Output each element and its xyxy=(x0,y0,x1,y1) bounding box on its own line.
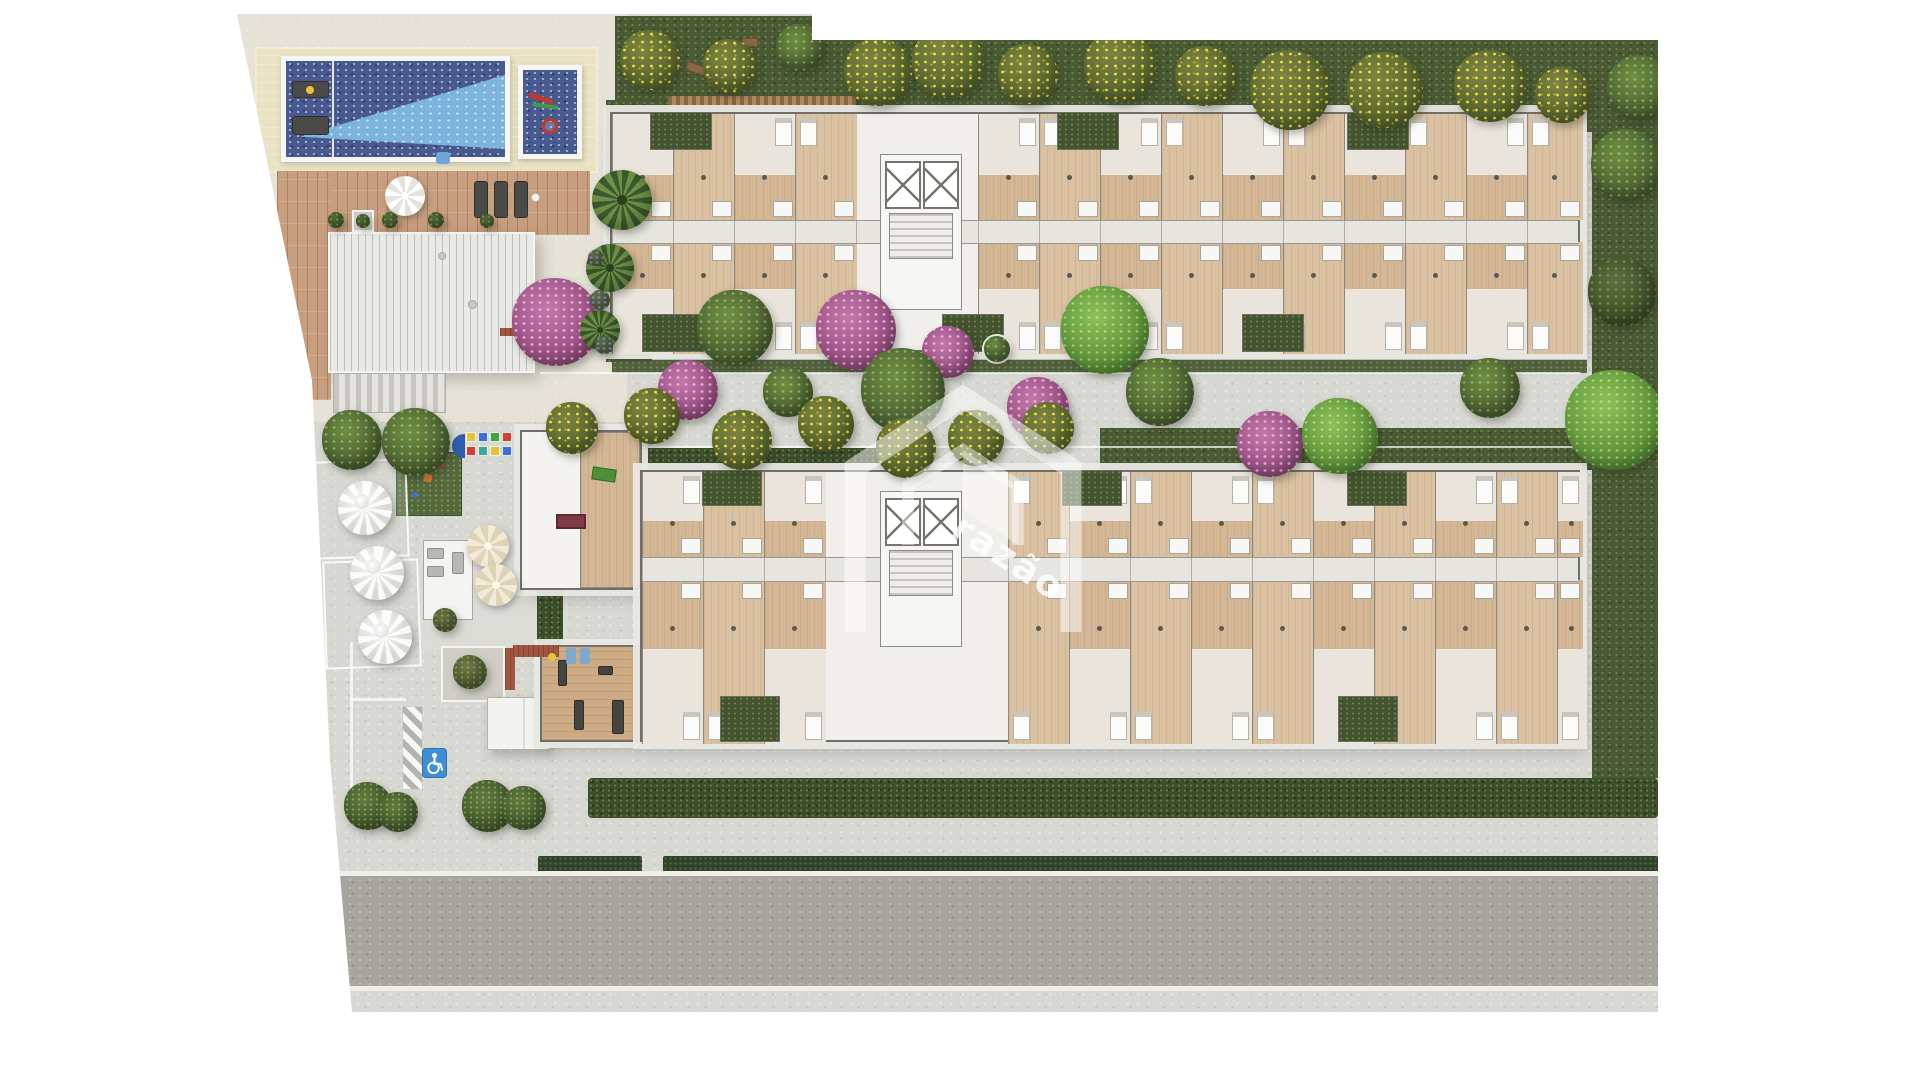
street xyxy=(315,876,1658,988)
tree-bush-48 xyxy=(480,214,494,228)
tree-y-30 xyxy=(546,402,598,454)
unit-table xyxy=(1433,273,1438,278)
unit-bathroom xyxy=(712,201,732,217)
tree-y-5 xyxy=(1084,30,1156,102)
unit-bed xyxy=(1257,712,1274,740)
unit-table xyxy=(1097,626,1102,631)
unit-bed xyxy=(1532,322,1549,350)
courtyard-garden xyxy=(650,112,712,150)
unit-table xyxy=(731,626,736,631)
tree-y-4 xyxy=(998,44,1058,104)
unit-table xyxy=(1552,273,1557,278)
unit-table xyxy=(1524,626,1529,631)
tree-gd-14 xyxy=(1588,258,1656,326)
unit-bathroom xyxy=(1108,538,1128,554)
unit-table xyxy=(1280,626,1285,631)
unit-bed xyxy=(1166,118,1183,146)
unit-bathroom xyxy=(1230,538,1250,554)
unit-bed xyxy=(1532,118,1549,146)
staircase xyxy=(889,550,953,596)
apartment-unit xyxy=(1222,114,1284,220)
unit-bed xyxy=(1044,322,1061,350)
pool-ladder xyxy=(436,152,450,164)
tree-y-9 xyxy=(1454,50,1526,122)
unit-table xyxy=(731,521,736,526)
kids-pool-ring-float xyxy=(542,118,558,134)
deck-lounger-3 xyxy=(514,181,528,218)
tree-y-34 xyxy=(876,418,936,478)
deck-lounger-2 xyxy=(494,181,508,218)
unit-bed xyxy=(805,476,822,504)
tree-g-25 xyxy=(984,336,1010,362)
condominium-site xyxy=(0,0,1920,1080)
tree-olive-50 xyxy=(453,655,487,689)
apartment-unit xyxy=(1191,472,1253,557)
pool-lane-line xyxy=(332,61,334,157)
tree-y-3 xyxy=(912,26,984,98)
apartment-unit xyxy=(1496,580,1558,744)
unit-bathroom xyxy=(1413,538,1433,554)
unit-bathroom xyxy=(1505,201,1525,217)
tree-bush-53 xyxy=(378,792,418,832)
gym-mat-1 xyxy=(566,648,576,664)
unit-bed xyxy=(1135,712,1152,740)
apartment-unit xyxy=(1161,242,1223,354)
gym-bench xyxy=(598,666,613,675)
unit-bed xyxy=(1476,712,1493,740)
unit-bathroom xyxy=(1169,583,1189,599)
apartment-unit xyxy=(1405,242,1467,354)
hopscotch-tile-7 xyxy=(490,446,500,456)
tree-gb-26 xyxy=(1061,286,1149,374)
apartment-unit xyxy=(978,114,1040,220)
party-room-roof xyxy=(328,232,535,373)
unit-bathroom xyxy=(1139,201,1159,217)
unit-bed xyxy=(1385,322,1402,350)
hopscotch-tile-6 xyxy=(478,446,488,456)
staircase xyxy=(889,213,953,259)
tree-g-13 xyxy=(1591,129,1663,201)
unit-bed xyxy=(1410,118,1427,146)
unit-bed xyxy=(1013,712,1030,740)
tree-y-32 xyxy=(712,410,772,470)
apartment-unit xyxy=(1527,114,1583,220)
unit-bed xyxy=(775,322,792,350)
unit-bathroom xyxy=(803,538,823,554)
unit-bathroom xyxy=(834,245,854,261)
courtyard-garden xyxy=(1057,112,1119,150)
unit-bed xyxy=(1501,712,1518,740)
games-room-wood-floor xyxy=(580,432,640,588)
hopscotch-tile-1 xyxy=(466,432,476,442)
unit-table xyxy=(1569,626,1574,631)
unit-bathroom xyxy=(1261,201,1281,217)
tree-palm-39 xyxy=(592,170,652,230)
unit-bathroom xyxy=(651,245,671,261)
unit-bathroom xyxy=(1017,201,1037,217)
dome-roof-2 xyxy=(350,546,404,600)
lounge-sofa-3 xyxy=(452,552,464,574)
unit-bathroom xyxy=(1291,538,1311,554)
apartment-unit xyxy=(1252,580,1314,744)
unit-bed xyxy=(1135,476,1152,504)
unit-table xyxy=(1402,626,1407,631)
unit-bathroom xyxy=(1474,583,1494,599)
wood-deck-vertical xyxy=(277,171,331,400)
central-corridor xyxy=(642,557,1578,582)
gym-treadmill xyxy=(574,700,584,730)
unit-bed xyxy=(1019,322,1036,350)
apartment-unit xyxy=(642,472,704,557)
tree-bush-45 xyxy=(328,212,344,228)
site-plan-rendering: razão xyxy=(0,0,1920,1080)
apartment-unit xyxy=(1130,472,1192,557)
tree-y-36 xyxy=(1022,402,1074,454)
unit-bed xyxy=(1501,476,1518,504)
unit-bed xyxy=(800,118,817,146)
apartment-unit xyxy=(1557,472,1583,557)
unit-bathroom xyxy=(1047,583,1067,599)
unit-table xyxy=(1524,521,1529,526)
elevator-shaft xyxy=(885,498,921,546)
unit-bed xyxy=(1507,322,1524,350)
tree-bush-46 xyxy=(382,212,398,228)
courtyard-garden xyxy=(1062,470,1122,506)
unit-bathroom xyxy=(1444,201,1464,217)
tree-g-11 xyxy=(776,24,824,72)
unit-bed xyxy=(800,322,817,350)
unit-bed xyxy=(1013,476,1030,504)
street-curb-north xyxy=(315,871,1658,876)
unit-bathroom xyxy=(1560,201,1580,217)
unit-table xyxy=(1189,175,1194,180)
courtyard-garden xyxy=(720,696,780,742)
tree-gb-15 xyxy=(1565,370,1665,470)
lounge-sofa-2 xyxy=(427,566,444,577)
apartment-unit xyxy=(642,580,704,744)
unit-table xyxy=(1463,626,1468,631)
hopscotch-tile-4 xyxy=(502,432,512,442)
unit-bathroom xyxy=(1078,201,1098,217)
tree-g-38 xyxy=(382,408,450,476)
elevator-shaft xyxy=(885,161,921,209)
hopscotch-tile-8 xyxy=(502,446,512,456)
elevator-shaft xyxy=(923,161,959,209)
unit-bed xyxy=(805,712,822,740)
unit-bathroom xyxy=(1560,245,1580,261)
tree-bush-47 xyxy=(428,212,444,228)
deck-side-table xyxy=(531,193,540,202)
unit-table xyxy=(701,273,706,278)
deck-lounger-1 xyxy=(474,181,488,218)
unit-table xyxy=(1189,273,1194,278)
lawn-toy-blue xyxy=(412,492,418,498)
unit-bathroom xyxy=(803,583,823,599)
unit-bathroom xyxy=(1535,538,1555,554)
residential-block-south xyxy=(640,470,1580,742)
unit-bathroom xyxy=(1291,583,1311,599)
apartment-unit xyxy=(1069,580,1131,744)
hopscotch-tile-3 xyxy=(490,432,500,442)
lounge-sofa-1 xyxy=(427,548,444,559)
courtyard-garden xyxy=(702,470,762,506)
unit-table xyxy=(1036,626,1041,631)
unit-table xyxy=(1158,521,1163,526)
unit-table xyxy=(1219,626,1224,631)
tree-b-44 xyxy=(595,336,613,354)
unit-table xyxy=(1311,175,1316,180)
hopscotch-tile-2 xyxy=(478,432,488,442)
apartment-unit xyxy=(1435,580,1497,744)
unit-table xyxy=(1158,626,1163,631)
unit-bed xyxy=(1476,476,1493,504)
unit-bathroom xyxy=(1560,583,1580,599)
unit-table xyxy=(701,175,706,180)
tree-bush-55 xyxy=(502,786,546,830)
apartment-unit xyxy=(764,472,826,557)
unit-bathroom xyxy=(681,538,701,554)
unit-bathroom xyxy=(1505,245,1525,261)
tree-bush-49 xyxy=(356,214,370,228)
lounge-umbrella-2 xyxy=(475,564,517,606)
apartment-unit xyxy=(1496,472,1558,557)
apartment-unit xyxy=(795,114,857,220)
unit-table xyxy=(1280,521,1285,526)
apartment-unit xyxy=(1527,242,1583,354)
tree-y-2 xyxy=(844,38,912,106)
unit-bathroom xyxy=(1413,583,1433,599)
apartment-unit xyxy=(1191,580,1253,744)
pool-lounger-2 xyxy=(292,116,329,135)
billiards-table xyxy=(556,514,586,529)
unit-bathroom xyxy=(834,201,854,217)
tree-olive-51 xyxy=(433,608,457,632)
unit-bathroom xyxy=(1444,245,1464,261)
elevator-stair-core xyxy=(880,491,962,647)
kids-pool-water xyxy=(523,70,577,154)
roof-vent-1 xyxy=(438,252,446,260)
tree-y-35 xyxy=(948,410,1004,466)
unit-bathroom xyxy=(1352,583,1372,599)
unit-bathroom xyxy=(742,538,762,554)
unit-table xyxy=(1036,521,1041,526)
tree-b-43 xyxy=(588,250,604,266)
unit-bathroom xyxy=(651,201,671,217)
wheelchair-icon xyxy=(423,749,446,777)
tree-g-29 xyxy=(1460,358,1520,418)
tree-p-21 xyxy=(1237,411,1303,477)
tree-y-33 xyxy=(798,396,854,452)
unit-bathroom xyxy=(1108,583,1128,599)
gym-ball xyxy=(548,653,556,661)
unit-table xyxy=(823,175,828,180)
entrance-crosswalk-hatch xyxy=(402,706,423,790)
unit-table xyxy=(1402,521,1407,526)
apartment-unit xyxy=(1405,114,1467,220)
street-curb-south xyxy=(315,986,1658,991)
unit-bed xyxy=(683,712,700,740)
apartment-unit xyxy=(1466,242,1528,354)
apartment-unit xyxy=(1435,472,1497,557)
unit-bathroom xyxy=(1230,583,1250,599)
apartment-unit xyxy=(1466,114,1528,220)
unit-bed xyxy=(1110,712,1127,740)
gym-mat-2 xyxy=(580,648,590,664)
unit-bed xyxy=(1019,118,1036,146)
elevator-shaft xyxy=(923,498,959,546)
lounge-umbrella-1 xyxy=(467,525,509,567)
unit-table xyxy=(670,626,675,631)
unit-bathroom xyxy=(681,583,701,599)
apartment-unit xyxy=(1252,472,1314,557)
hopscotch-tile-5 xyxy=(466,446,476,456)
unit-bathroom xyxy=(742,583,762,599)
unit-table xyxy=(792,626,797,631)
unit-bed xyxy=(1507,118,1524,146)
unit-bed xyxy=(1562,712,1579,740)
courtyard-garden xyxy=(1242,314,1304,352)
unit-bathroom xyxy=(1169,538,1189,554)
unit-table xyxy=(1311,273,1316,278)
unit-table xyxy=(1341,626,1346,631)
courtyard-garden xyxy=(1338,696,1398,742)
unit-bathroom xyxy=(1560,538,1580,554)
tree-g-12 xyxy=(1607,55,1673,121)
tree-y-6 xyxy=(1175,46,1235,106)
unit-bathroom xyxy=(1200,201,1220,217)
unit-bathroom xyxy=(1322,245,1342,261)
roof-vent-2 xyxy=(468,300,477,309)
south-hedge-strip xyxy=(588,778,1658,818)
tree-y-8 xyxy=(1347,52,1423,128)
unit-bed xyxy=(1141,118,1158,146)
courtyard-garden xyxy=(1347,470,1407,506)
unit-bathroom xyxy=(1139,245,1159,261)
unit-bed xyxy=(1562,476,1579,504)
dome-roof-3 xyxy=(358,610,412,664)
tree-g-22 xyxy=(697,290,773,366)
courtyard-garden xyxy=(642,314,704,352)
accessible-parking-sign xyxy=(423,749,446,777)
unit-bed xyxy=(1232,476,1249,504)
street-hedge-wall-west xyxy=(538,856,642,872)
unit-bathroom xyxy=(1047,538,1067,554)
tree-g-37 xyxy=(322,410,382,470)
apartment-unit xyxy=(1344,242,1406,354)
unit-bed xyxy=(1257,476,1274,504)
drive-line-vertical xyxy=(350,642,353,800)
tree-gb-28 xyxy=(1302,398,1378,474)
unit-bathroom xyxy=(1200,245,1220,261)
tree-y-0 xyxy=(620,30,680,90)
unit-bathroom xyxy=(1017,245,1037,261)
unit-bathroom xyxy=(1535,583,1555,599)
unit-bathroom xyxy=(773,245,793,261)
tree-g-27 xyxy=(1126,358,1194,426)
unit-bathroom xyxy=(1352,538,1372,554)
unit-bathroom xyxy=(1261,245,1281,261)
roof-slat-annex xyxy=(333,373,446,413)
tree-y-10 xyxy=(1535,67,1591,123)
apartment-unit xyxy=(1008,580,1070,744)
gym-rack xyxy=(612,700,624,734)
tree-y-31 xyxy=(624,388,680,444)
unit-table xyxy=(1067,273,1072,278)
elevator-stair-core xyxy=(880,154,962,310)
unit-table xyxy=(1067,175,1072,180)
unit-bathroom xyxy=(773,201,793,217)
apartment-unit xyxy=(1557,580,1583,744)
gym-bike xyxy=(558,660,567,686)
tree-y-1 xyxy=(703,39,757,93)
unit-bathroom xyxy=(1078,245,1098,261)
unit-bathroom xyxy=(1474,538,1494,554)
unit-table xyxy=(1433,175,1438,180)
unit-bed xyxy=(775,118,792,146)
unit-table xyxy=(1552,175,1557,180)
drive-line-horizontal xyxy=(350,698,406,701)
apartment-unit xyxy=(734,114,796,220)
apartment-unit xyxy=(1130,580,1192,744)
tree-y-7 xyxy=(1250,50,1330,130)
unit-bathroom xyxy=(712,245,732,261)
deck-umbrella xyxy=(385,176,425,216)
street-hedge-wall-east xyxy=(663,856,1658,872)
unit-bed xyxy=(1410,322,1427,350)
apartment-unit xyxy=(1161,114,1223,220)
unit-bed xyxy=(1232,712,1249,740)
unit-bathroom xyxy=(1383,201,1403,217)
unit-bathroom xyxy=(1383,245,1403,261)
unit-bathroom xyxy=(1322,201,1342,217)
central-corridor xyxy=(612,220,1578,244)
unit-table xyxy=(823,273,828,278)
apartment-unit xyxy=(1008,472,1070,557)
tree-b-42 xyxy=(590,290,610,310)
unit-bed xyxy=(683,476,700,504)
unit-bed xyxy=(1166,322,1183,350)
dome-roof-1 xyxy=(338,481,392,535)
pool-ball xyxy=(306,86,314,94)
